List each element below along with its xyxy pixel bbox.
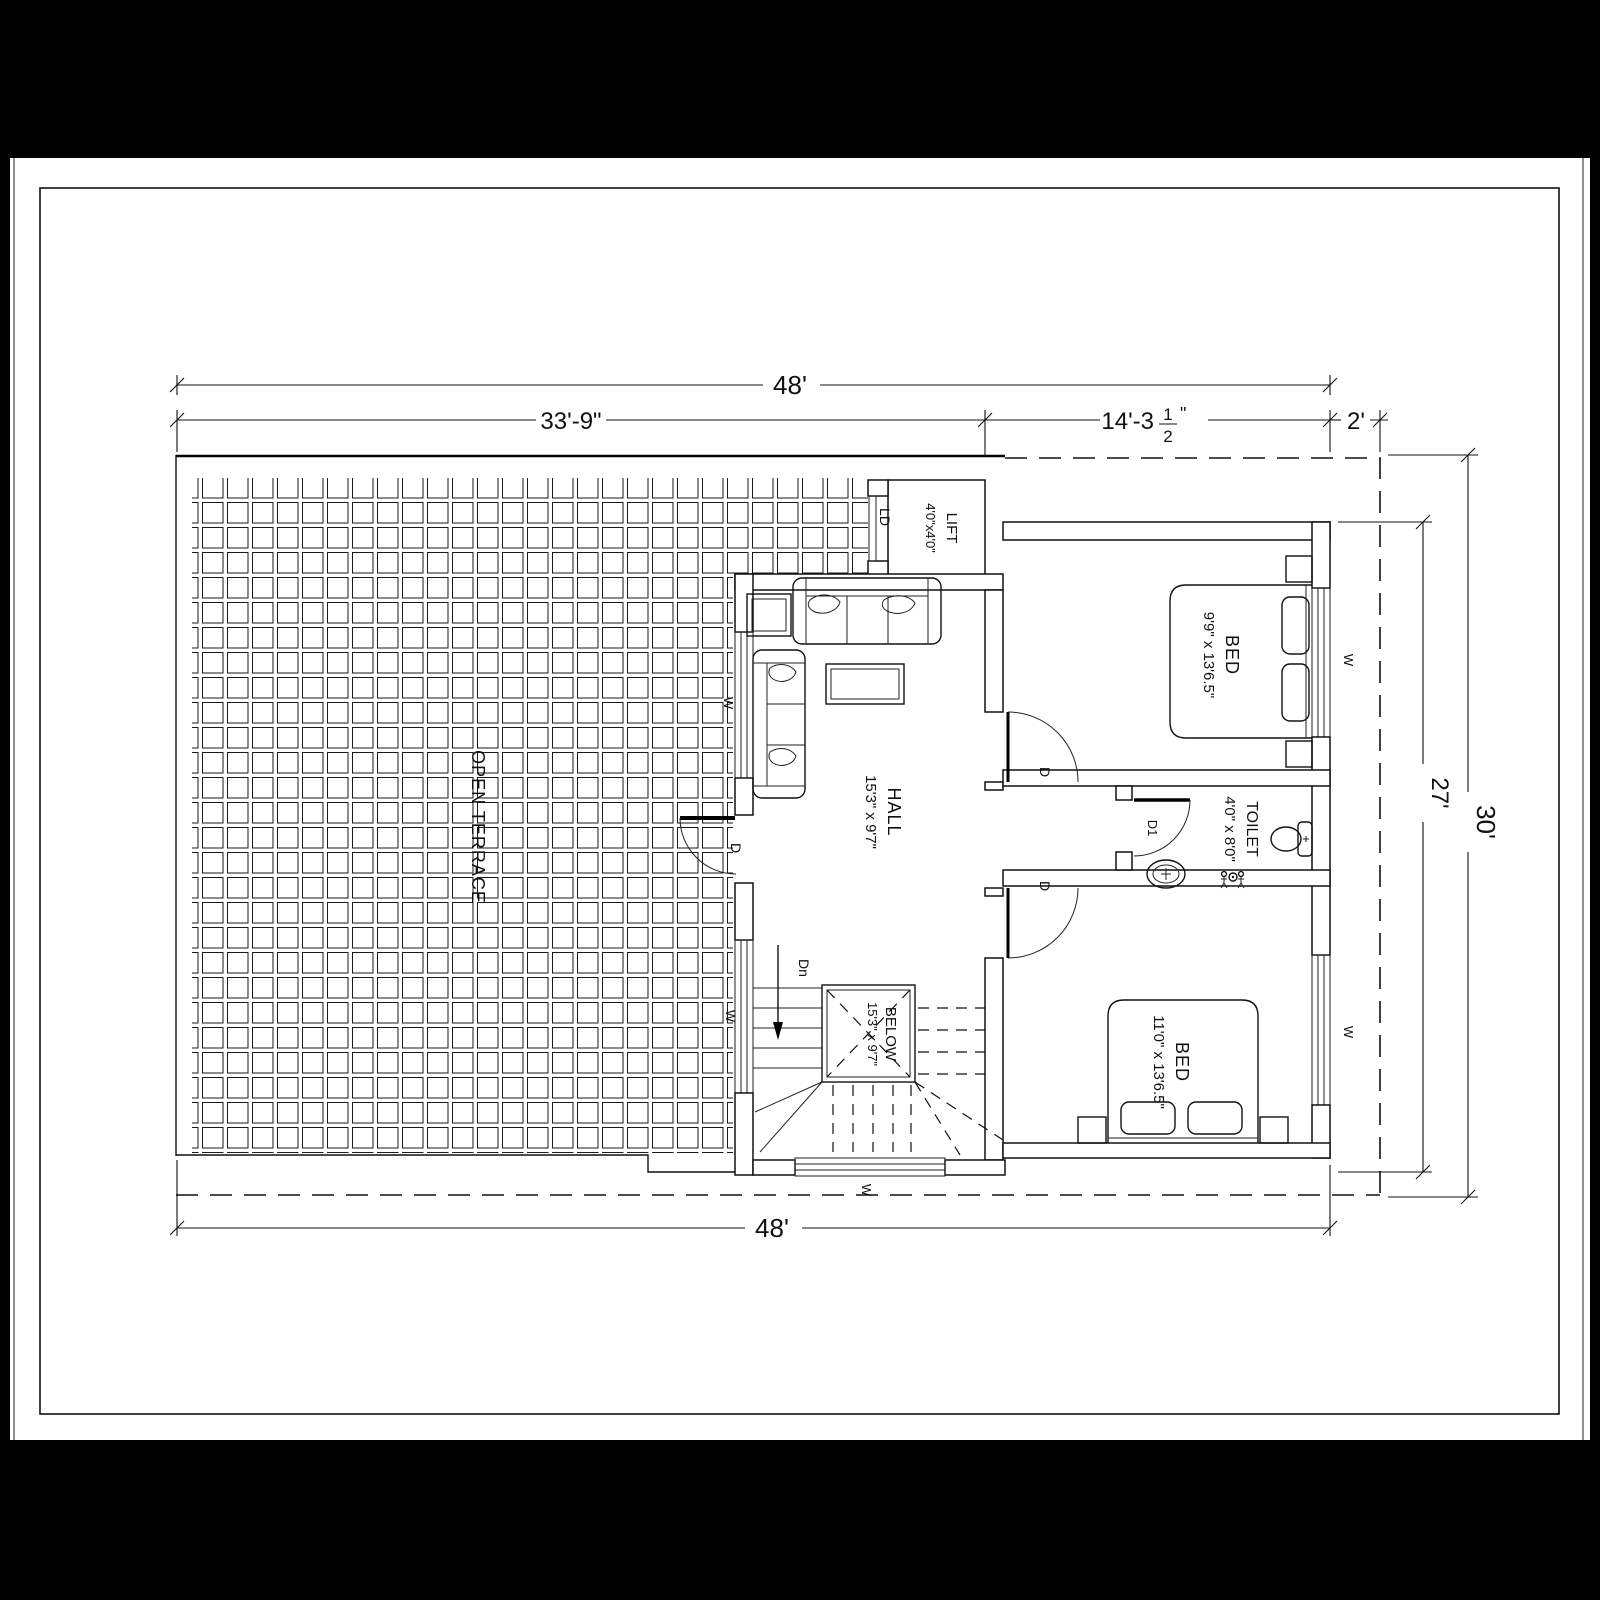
window-label-hall: W bbox=[721, 697, 736, 710]
bed2-door-label: D bbox=[1037, 881, 1053, 891]
window-label-bottom: W bbox=[859, 1184, 874, 1197]
lift-label: LIFT bbox=[943, 513, 960, 544]
window-label-bed1: W bbox=[1341, 654, 1356, 667]
dim-top-48: 48' bbox=[773, 370, 807, 400]
dim-right-30: 30' bbox=[1471, 805, 1501, 839]
dim-frac-suffix: " bbox=[1180, 404, 1186, 424]
window-label-bed2: W bbox=[1341, 1026, 1356, 1039]
floor-plan-sheet: 48' 33'-9" 14'-3 1 2 " 2' 30' bbox=[0, 0, 1600, 1600]
bed1-label: BED bbox=[1222, 635, 1242, 675]
dim-top-14-3: 14'-3 bbox=[1101, 408, 1154, 435]
bed2-size-label: 11'0" x 13'6.5" bbox=[1150, 1015, 1167, 1109]
bed1-top-wall bbox=[1003, 522, 1330, 540]
hall-size-label: 15'3" x 9'7" bbox=[862, 775, 879, 849]
bed1-door-label: D bbox=[1037, 767, 1053, 777]
toilet-size-label: 4'0" x 8'0" bbox=[1221, 796, 1238, 862]
bed2-bottom-wall bbox=[1003, 1143, 1330, 1158]
terrace-label: OPEN TERRACE bbox=[468, 750, 488, 904]
lift-door-label: LD bbox=[877, 508, 893, 526]
dim-right-27: 27' bbox=[1426, 777, 1453, 808]
hall-top-wall bbox=[735, 574, 1003, 590]
lift-size-label: 4'0"x4'0" bbox=[923, 503, 938, 553]
hall-label: HALL bbox=[884, 787, 904, 836]
floor-plan-drawing: 48' 33'-9" 14'-3 1 2 " 2' 30' bbox=[0, 0, 1600, 1600]
bed1-size-label: 9'9" x 13'6.5" bbox=[1200, 612, 1217, 698]
bed2-label: BED bbox=[1172, 1042, 1192, 1082]
window-label-stairs: W bbox=[723, 1010, 738, 1023]
below-label: BELOW bbox=[882, 1007, 899, 1062]
toilet-door-label: D1 bbox=[1145, 820, 1160, 837]
dim-top-2ft: 2' bbox=[1347, 408, 1365, 435]
dim-frac-numerator: 1 bbox=[1163, 405, 1172, 424]
dim-bottom-48: 48' bbox=[755, 1213, 789, 1243]
below-size-label: 15'3" x 9'7" bbox=[865, 1002, 880, 1066]
stairs-dn-label: Dn bbox=[796, 959, 812, 977]
dim-top-33-9: 33'-9" bbox=[540, 408, 601, 435]
terrace-door-label: D bbox=[728, 843, 744, 853]
lift-jamb-top bbox=[868, 480, 888, 496]
terrace-tiles bbox=[192, 478, 733, 1153]
dim-frac-denominator: 2 bbox=[1163, 427, 1172, 446]
toilet-label: TOILET bbox=[1243, 801, 1260, 857]
